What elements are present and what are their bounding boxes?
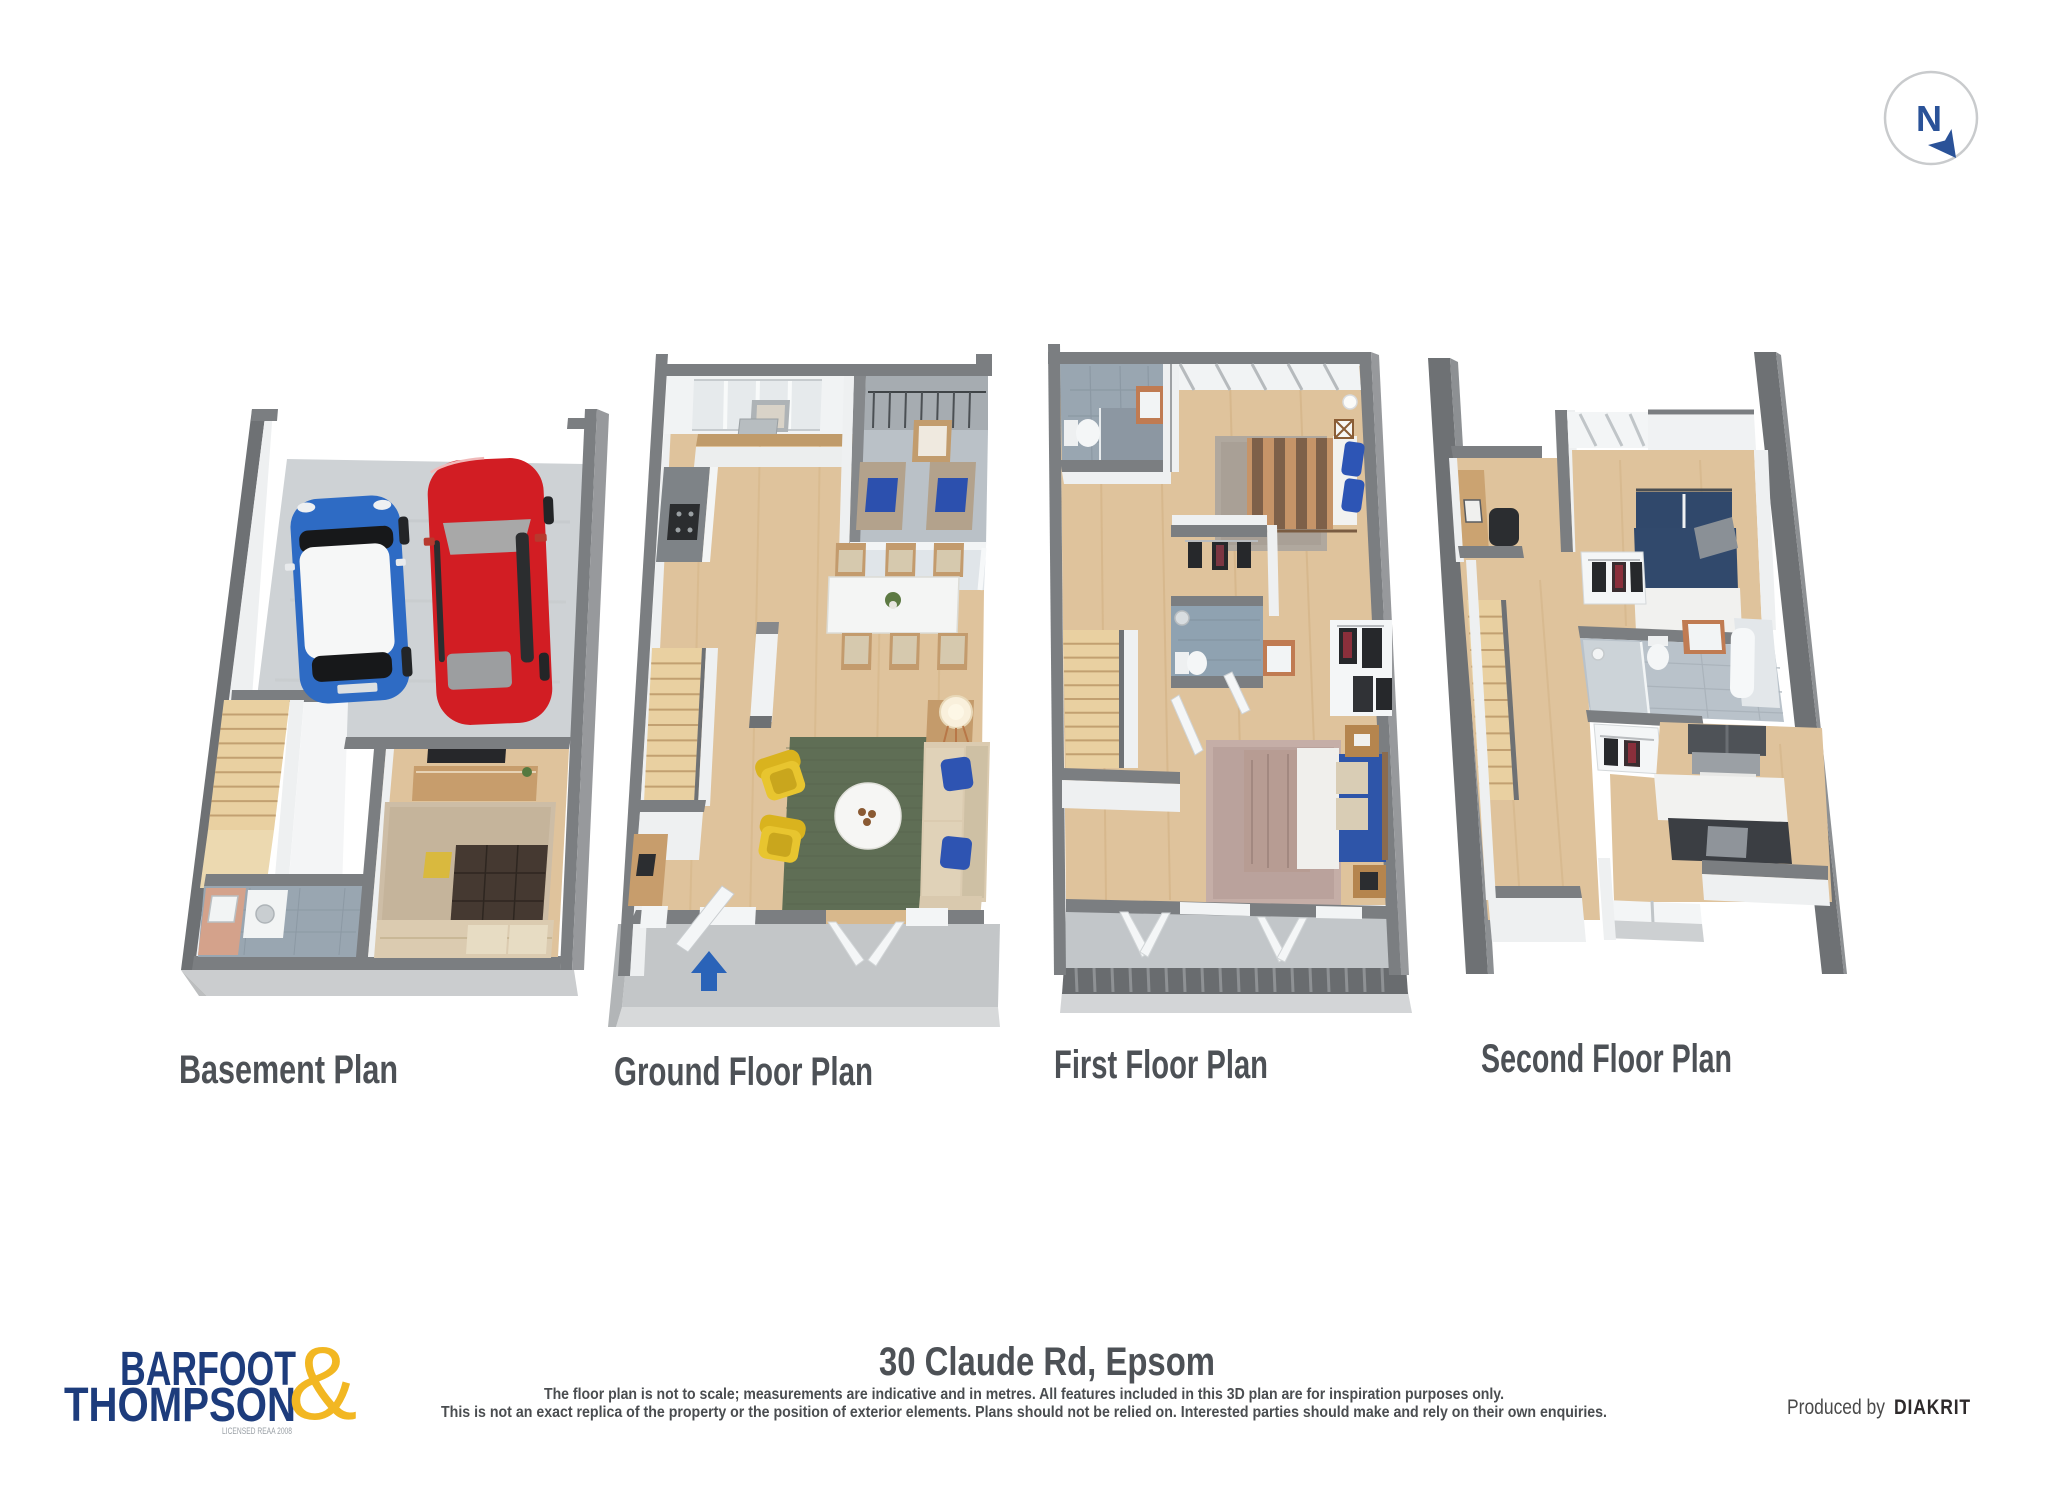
svg-text:Basement Plan: Basement Plan	[179, 1048, 398, 1092]
svg-text:Ground Floor Plan: Ground Floor Plan	[614, 1050, 873, 1094]
svg-text:LICENSED REAA 2008: LICENSED REAA 2008	[222, 1426, 292, 1437]
svg-text:30 Claude Rd, Epsom: 30 Claude Rd, Epsom	[879, 1340, 1215, 1384]
svg-text:Second Floor Plan: Second Floor Plan	[1481, 1037, 1732, 1081]
svg-text:THOMPSON: THOMPSON	[64, 1379, 296, 1432]
svg-text:This is not an exact replica o: This is not an exact replica of the prop…	[441, 1404, 1607, 1421]
svg-text:The floor plan is not to scale: The floor plan is not to scale; measurem…	[544, 1386, 1504, 1403]
svg-text:Produced by: Produced by	[1787, 1396, 1885, 1419]
svg-text:DIAKRIT: DIAKRIT	[1894, 1396, 1971, 1419]
svg-text:&: &	[288, 1326, 357, 1442]
svg-text:N: N	[1916, 98, 1942, 139]
svg-text:First Floor Plan: First Floor Plan	[1054, 1043, 1268, 1087]
